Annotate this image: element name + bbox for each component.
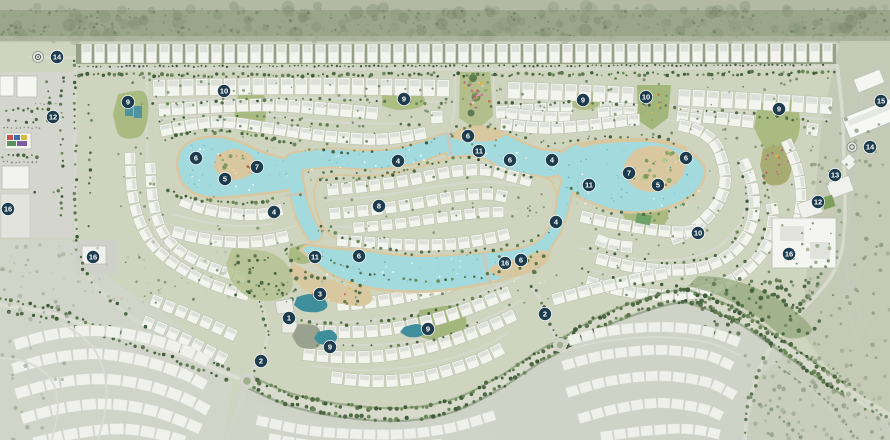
- svg-text:6: 6: [194, 154, 198, 163]
- svg-text:13: 13: [831, 171, 839, 180]
- svg-text:10: 10: [220, 87, 228, 96]
- svg-text:7: 7: [627, 169, 631, 178]
- svg-text:9: 9: [328, 343, 332, 352]
- svg-text:12: 12: [814, 198, 822, 207]
- svg-text:2: 2: [259, 357, 263, 366]
- svg-text:16: 16: [89, 253, 97, 262]
- svg-text:6: 6: [519, 256, 523, 265]
- svg-text:11: 11: [311, 253, 319, 262]
- svg-text:11: 11: [585, 181, 593, 190]
- svg-text:6: 6: [508, 156, 512, 165]
- svg-text:5: 5: [656, 181, 660, 190]
- svg-text:16: 16: [4, 205, 12, 214]
- svg-text:6: 6: [357, 252, 361, 261]
- svg-text:9: 9: [581, 96, 585, 105]
- svg-text:16: 16: [785, 250, 793, 259]
- svg-text:6: 6: [466, 132, 470, 141]
- svg-text:5: 5: [223, 175, 227, 184]
- svg-text:10: 10: [694, 229, 702, 238]
- svg-text:9: 9: [402, 95, 406, 104]
- svg-text:9: 9: [777, 105, 781, 114]
- svg-text:12: 12: [49, 113, 57, 122]
- svg-text:9: 9: [426, 325, 430, 334]
- svg-text:10: 10: [642, 93, 650, 102]
- svg-text:2: 2: [543, 310, 547, 319]
- svg-text:3: 3: [318, 290, 322, 299]
- svg-text:15: 15: [877, 97, 885, 106]
- svg-text:11: 11: [475, 147, 483, 156]
- svg-text:8: 8: [377, 202, 381, 211]
- svg-text:14: 14: [53, 53, 62, 62]
- svg-text:16: 16: [501, 259, 509, 268]
- svg-text:9: 9: [126, 98, 130, 107]
- svg-text:14: 14: [866, 143, 875, 152]
- svg-text:1: 1: [287, 314, 291, 323]
- svg-text:7: 7: [255, 163, 259, 172]
- svg-text:6: 6: [684, 154, 688, 163]
